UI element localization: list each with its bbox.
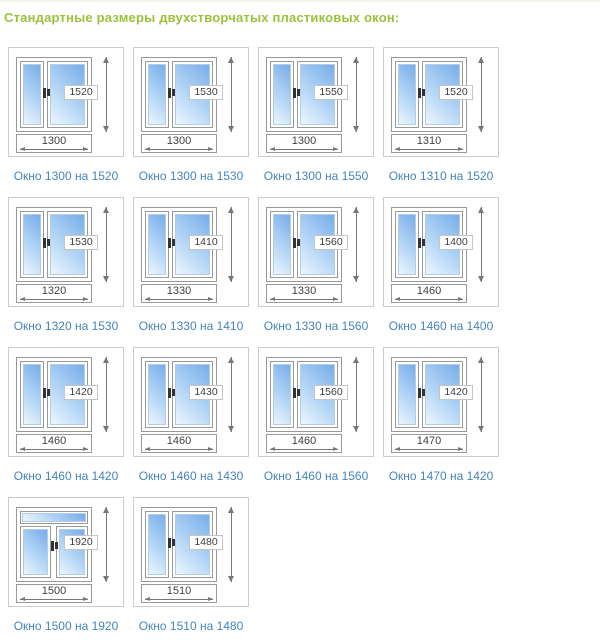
height-value: 1530 [189, 85, 223, 100]
height-value: 1410 [189, 235, 223, 250]
window-card: 1530 1300 [133, 47, 249, 157]
window-cell: 1430 1460 Окно 1460 на 1430 [129, 343, 254, 493]
window-caption[interactable]: Окно 1460 на 1420 [4, 469, 128, 483]
window-caption[interactable]: Окно 1300 на 1520 [4, 169, 128, 183]
width-dimension-arrow [20, 597, 88, 602]
window-caption[interactable]: Окно 1470 на 1420 [379, 469, 503, 483]
width-dimension-arrow [395, 147, 463, 152]
width-value: 1300 [142, 136, 216, 147]
height-value: 1400 [439, 235, 473, 250]
width-dimension-arrow [20, 447, 88, 452]
width-sill: 1470 [391, 434, 467, 453]
glass-pane [148, 514, 166, 575]
width-value: 1310 [392, 136, 466, 147]
width-sill: 1460 [391, 284, 467, 303]
window-cell: 1410 1330 Окно 1330 на 1410 [129, 193, 254, 343]
width-value: 1300 [17, 136, 91, 147]
window-card: 1560 1330 [258, 197, 374, 307]
window-handle-icon [43, 88, 51, 98]
window-card: 1420 1470 [383, 347, 499, 457]
window-caption[interactable]: Окно 1500 на 1920 [4, 619, 128, 633]
left-sash [395, 361, 419, 428]
width-value: 1300 [267, 136, 341, 147]
height-value: 1560 [314, 385, 348, 400]
left-sash [20, 526, 51, 578]
glass-pane [148, 214, 166, 275]
left-sash [270, 211, 294, 278]
window-handle-icon [293, 388, 301, 398]
width-sill: 1320 [16, 284, 92, 303]
window-handle-icon [418, 88, 426, 98]
window-handle-icon [293, 238, 301, 248]
glass-pane [273, 214, 291, 275]
width-sill: 1300 [141, 134, 217, 153]
glass-pane [23, 64, 41, 125]
height-dimension-line [227, 357, 236, 432]
width-value: 1460 [142, 436, 216, 447]
width-value: 1500 [17, 586, 91, 597]
height-value: 1520 [439, 85, 473, 100]
height-dimension-line [352, 57, 361, 132]
window-caption[interactable]: Окно 1460 на 1430 [129, 469, 253, 483]
width-sill: 1300 [266, 134, 342, 153]
height-dimension-line [227, 57, 236, 132]
window-cell: 1530 1320 Окно 1320 на 1530 [4, 193, 129, 343]
width-dimension-arrow [20, 297, 88, 302]
width-value: 1330 [267, 286, 341, 297]
left-sash [145, 61, 169, 128]
window-caption[interactable]: Окно 1510 на 1480 [129, 619, 253, 633]
height-value: 1560 [314, 235, 348, 250]
window-sashes [20, 526, 88, 578]
glass-pane [148, 364, 166, 425]
width-sill: 1310 [391, 134, 467, 153]
left-sash [145, 211, 169, 278]
height-value: 1520 [64, 85, 98, 100]
window-cell: 1560 1330 Окно 1330 на 1560 [254, 193, 379, 343]
width-dimension-arrow [145, 447, 213, 452]
transom-pane [20, 511, 88, 524]
height-dimension-line [102, 57, 111, 132]
window-cell: 1560 1460 Окно 1460 на 1560 [254, 343, 379, 493]
height-dimension-line [227, 207, 236, 282]
width-dimension-arrow [145, 597, 213, 602]
height-dimension-line [102, 207, 111, 282]
width-sill: 1300 [16, 134, 92, 153]
window-card: 1560 1460 [258, 347, 374, 457]
window-card: 1410 1330 [133, 197, 249, 307]
width-sill: 1500 [16, 584, 92, 603]
window-card: 1530 1320 [8, 197, 124, 307]
height-value: 1420 [439, 385, 473, 400]
width-dimension-arrow [270, 447, 338, 452]
height-dimension-line [102, 357, 111, 432]
width-dimension-arrow [145, 147, 213, 152]
left-sash [145, 361, 169, 428]
window-cell: 1420 1470 Окно 1470 на 1420 [379, 343, 504, 493]
left-sash [395, 61, 419, 128]
height-value: 1530 [64, 235, 98, 250]
window-handle-icon [43, 238, 51, 248]
window-handle-icon [168, 538, 176, 548]
window-card: 1400 1460 [383, 197, 499, 307]
height-dimension-line [102, 507, 111, 582]
page-top-edge [0, 0, 600, 2]
left-sash [20, 211, 44, 278]
window-card: 1920 1500 [8, 497, 124, 607]
width-sill: 1330 [266, 284, 342, 303]
window-handle-icon [43, 388, 51, 398]
glass-pane [273, 364, 291, 425]
window-caption[interactable]: Окно 1320 на 1530 [4, 319, 128, 333]
glass-pane [148, 64, 166, 125]
width-sill: 1460 [16, 434, 92, 453]
window-card: 1430 1460 [133, 347, 249, 457]
window-caption[interactable]: Окно 1460 на 1560 [254, 469, 378, 483]
window-cell: 1520 1300 Окно 1300 на 1520 [4, 43, 129, 193]
window-cell: 1400 1460 Окно 1460 на 1400 [379, 193, 504, 343]
window-cell: 1520 1310 Окно 1310 на 1520 [379, 43, 504, 193]
window-card: 1550 1300 [258, 47, 374, 157]
window-cell: 1420 1460 Окно 1460 на 1420 [4, 343, 129, 493]
width-dimension-arrow [395, 297, 463, 302]
window-card: 1420 1460 [8, 347, 124, 457]
window-handle-icon [168, 238, 176, 248]
height-value: 1920 [64, 535, 98, 550]
window-handle-icon [293, 88, 301, 98]
width-value: 1470 [392, 436, 466, 447]
glass-pane [22, 513, 86, 522]
glass-pane [23, 214, 41, 275]
glass-pane [398, 364, 416, 425]
window-cell: 1920 1500 Окно 1500 на 1920 [4, 493, 129, 643]
height-dimension-line [352, 207, 361, 282]
window-handle-icon [418, 238, 426, 248]
glass-pane [398, 214, 416, 275]
window-card: 1520 1310 [383, 47, 499, 157]
page-title: Стандартные размеры двухстворчатых пласт… [4, 10, 600, 25]
left-sash [20, 361, 44, 428]
height-dimension-line [227, 507, 236, 582]
height-value: 1420 [64, 385, 98, 400]
left-sash [270, 361, 294, 428]
glass-pane [398, 64, 416, 125]
window-handle-icon [418, 388, 426, 398]
width-dimension-arrow [20, 147, 88, 152]
left-sash [270, 61, 294, 128]
width-value: 1320 [17, 286, 91, 297]
width-sill: 1330 [141, 284, 217, 303]
width-value: 1330 [142, 286, 216, 297]
width-dimension-arrow [270, 147, 338, 152]
width-dimension-arrow [395, 447, 463, 452]
window-caption[interactable]: Окно 1300 на 1550 [254, 169, 378, 183]
right-sash [56, 526, 88, 578]
window-caption[interactable]: Окно 1330 на 1410 [129, 319, 253, 333]
height-value: 1550 [314, 85, 348, 100]
width-dimension-arrow [270, 297, 338, 302]
window-handle-icon [168, 388, 176, 398]
window-handle-icon [51, 541, 59, 551]
height-dimension-line [477, 357, 486, 432]
window-handle-icon [168, 88, 176, 98]
height-dimension-line [477, 207, 486, 282]
width-dimension-arrow [145, 297, 213, 302]
windows-grid: 1520 1300 Окно 1300 на 1520 [4, 43, 504, 643]
window-caption[interactable]: Окно 1300 на 1530 [129, 169, 253, 183]
height-value: 1430 [189, 385, 223, 400]
left-sash [20, 61, 44, 128]
window-card: 1480 1510 [133, 497, 249, 607]
left-sash [395, 211, 419, 278]
width-sill: 1460 [266, 434, 342, 453]
window-caption[interactable]: Окно 1330 на 1560 [254, 319, 378, 333]
width-value: 1460 [267, 436, 341, 447]
window-cell: 1480 1510 Окно 1510 на 1480 [129, 493, 254, 643]
height-dimension-line [352, 357, 361, 432]
window-card: 1520 1300 [8, 47, 124, 157]
height-value: 1480 [189, 535, 223, 550]
height-dimension-line [477, 57, 486, 132]
window-caption[interactable]: Окно 1310 на 1520 [379, 169, 503, 183]
window-cell: 1530 1300 Окно 1300 на 1530 [129, 43, 254, 193]
window-caption[interactable]: Окно 1460 на 1400 [379, 319, 503, 333]
width-value: 1510 [142, 586, 216, 597]
left-sash [145, 511, 169, 578]
glass-pane [23, 364, 41, 425]
glass-pane [273, 64, 291, 125]
width-value: 1460 [17, 436, 91, 447]
window-cell: 1550 1300 Окно 1300 на 1550 [254, 43, 379, 193]
width-value: 1460 [392, 286, 466, 297]
width-sill: 1510 [141, 584, 217, 603]
width-sill: 1460 [141, 434, 217, 453]
glass-pane [23, 529, 48, 575]
